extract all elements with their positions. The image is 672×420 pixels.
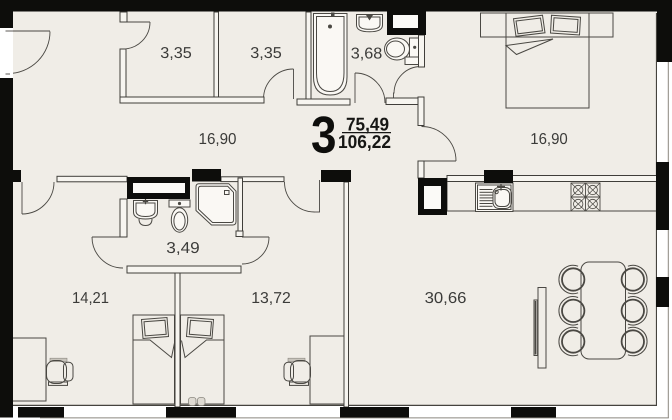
svg-text:3,49: 3,49 [166,240,200,257]
svg-text:13,72: 13,72 [251,290,291,307]
svg-text:3,35: 3,35 [160,45,192,62]
svg-text:3,68: 3,68 [351,46,383,63]
svg-text:14,21: 14,21 [72,290,109,307]
svg-text:30,66: 30,66 [425,290,467,307]
svg-text:3: 3 [311,107,337,165]
svg-text:16,90: 16,90 [199,131,237,148]
svg-text:106,22: 106,22 [338,131,391,152]
svg-text:16,90: 16,90 [530,131,568,148]
svg-text:3,35: 3,35 [250,45,282,62]
